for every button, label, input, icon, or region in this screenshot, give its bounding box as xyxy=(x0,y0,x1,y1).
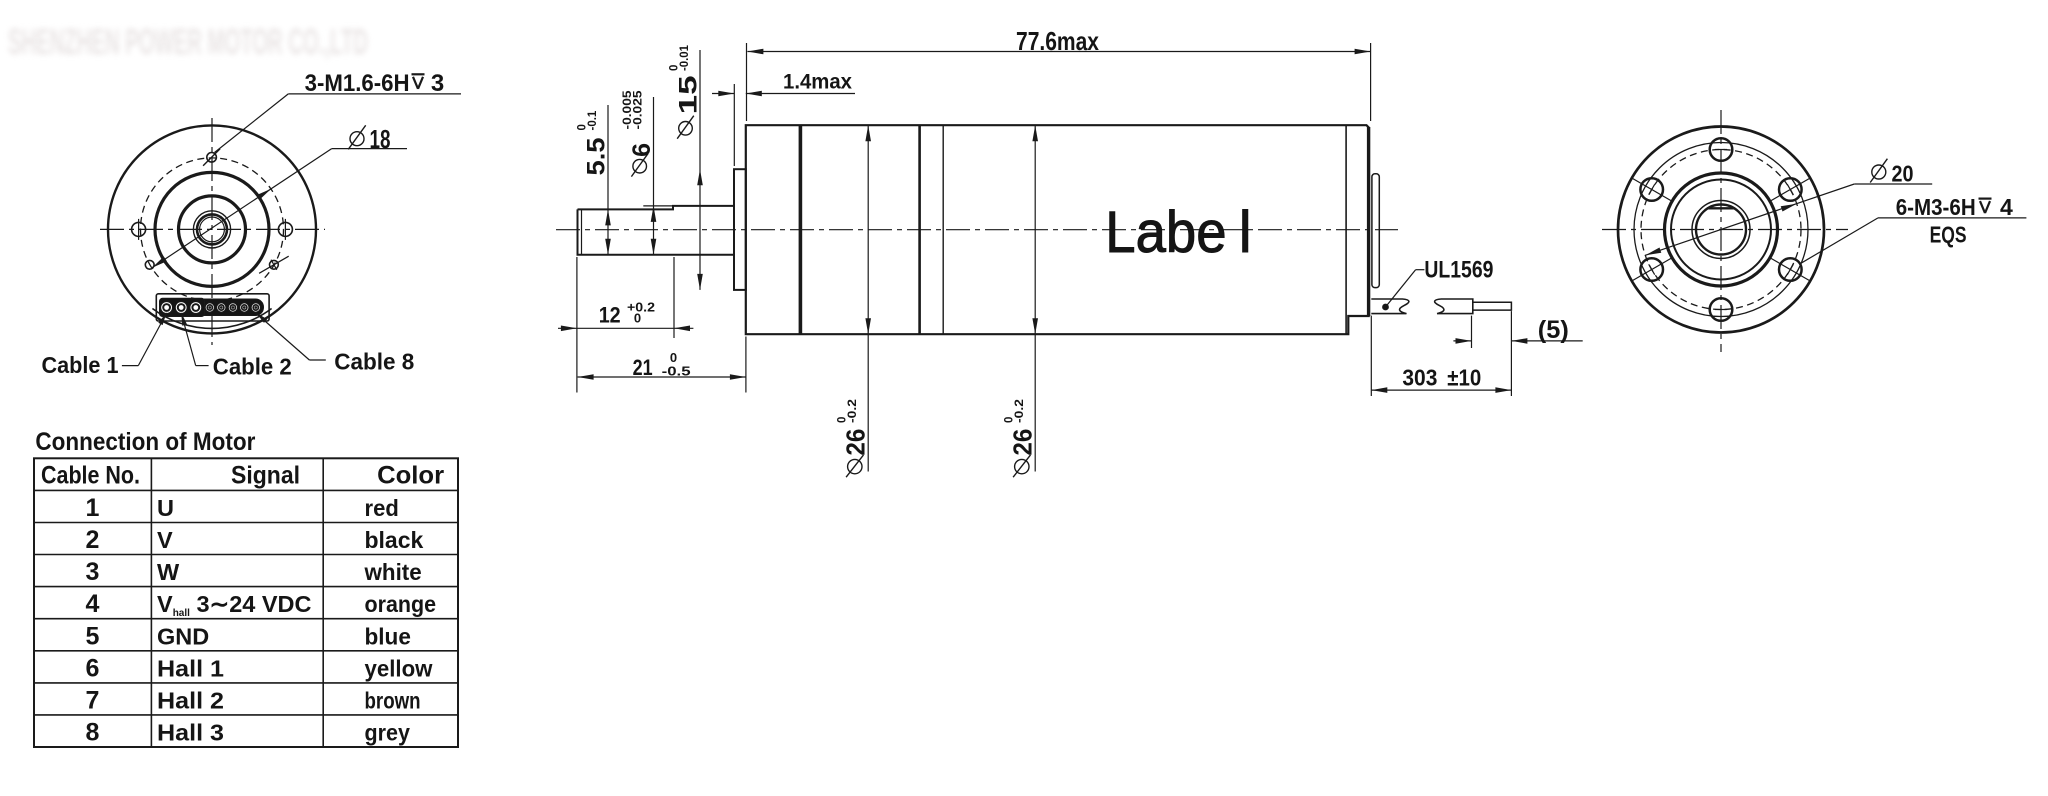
svg-text:-0.01: -0.01 xyxy=(679,44,691,71)
svg-text:3-M1.6-6H: 3-M1.6-6H xyxy=(305,70,410,97)
svg-text:4: 4 xyxy=(2000,194,2013,220)
svg-text:U: U xyxy=(157,495,174,521)
svg-text:7: 7 xyxy=(86,686,100,714)
svg-text:26: 26 xyxy=(1008,429,1038,456)
svg-text:5.5: 5.5 xyxy=(583,137,611,175)
svg-text:1.4max: 1.4max xyxy=(783,71,852,94)
svg-text:0: 0 xyxy=(670,350,677,365)
svg-text:orange: orange xyxy=(365,591,437,617)
svg-text:Color: Color xyxy=(377,462,444,490)
svg-text:white: white xyxy=(364,559,422,585)
svg-text:4: 4 xyxy=(86,590,100,618)
svg-text:-0.025: -0.025 xyxy=(633,90,645,130)
svg-text:12: 12 xyxy=(599,303,621,328)
svg-text:V: V xyxy=(157,527,173,553)
svg-text:-0.2: -0.2 xyxy=(1014,399,1026,423)
svg-text:grey: grey xyxy=(365,720,410,746)
svg-text:6: 6 xyxy=(628,143,656,157)
svg-text:brown: brown xyxy=(365,687,421,713)
svg-text:GND: GND xyxy=(157,623,209,649)
svg-text:303: 303 xyxy=(1402,365,1437,391)
svg-text:15: 15 xyxy=(675,75,703,114)
svg-text:Hall 2: Hall 2 xyxy=(157,687,224,713)
svg-text:1: 1 xyxy=(86,494,100,522)
svg-text:0: 0 xyxy=(634,310,641,325)
svg-text:Cable 1: Cable 1 xyxy=(42,352,119,378)
svg-text:SHENZHEN POWER MOTOR CO.,LTD: SHENZHEN POWER MOTOR CO.,LTD xyxy=(8,21,368,62)
svg-text:-0.5: -0.5 xyxy=(662,364,691,379)
svg-text:Signal: Signal xyxy=(231,462,300,490)
svg-text:red: red xyxy=(365,495,399,521)
svg-text:5: 5 xyxy=(86,622,100,650)
svg-text:blue: blue xyxy=(365,623,411,649)
svg-text:Cable 2: Cable 2 xyxy=(213,354,292,380)
svg-text:-0.2: -0.2 xyxy=(847,399,859,423)
svg-text:Hall 3: Hall 3 xyxy=(157,720,224,746)
svg-text:18: 18 xyxy=(370,124,391,154)
svg-text:Vhall 3∼24 VDC: Vhall 3∼24 VDC xyxy=(157,591,312,619)
svg-text:-0.1: -0.1 xyxy=(587,110,599,130)
svg-text:2: 2 xyxy=(86,526,100,554)
svg-text:Connection of Motor: Connection of Motor xyxy=(35,428,255,456)
svg-text:±10: ±10 xyxy=(1447,365,1481,391)
svg-text:26: 26 xyxy=(841,429,871,456)
svg-text:(5): (5) xyxy=(1538,316,1569,344)
svg-text:3: 3 xyxy=(431,70,444,97)
svg-text:black: black xyxy=(365,527,425,553)
svg-text:EQS: EQS xyxy=(1930,222,1967,248)
svg-text:Labe: Labe xyxy=(1105,200,1226,265)
svg-text:l: l xyxy=(1239,200,1252,265)
svg-text:21: 21 xyxy=(633,355,653,380)
svg-text:UL1569: UL1569 xyxy=(1424,257,1493,284)
svg-text:W: W xyxy=(157,559,180,585)
svg-text:yellow: yellow xyxy=(365,655,434,681)
svg-text:6: 6 xyxy=(86,654,100,682)
svg-text:3: 3 xyxy=(86,558,100,586)
svg-text:Cable No.: Cable No. xyxy=(41,462,140,490)
svg-text:77.6max: 77.6max xyxy=(1016,26,1099,56)
svg-text:6-M3-6H: 6-M3-6H xyxy=(1896,194,1976,220)
svg-text:Hall 1: Hall 1 xyxy=(157,655,224,681)
svg-text:8: 8 xyxy=(86,719,100,747)
svg-text:20: 20 xyxy=(1892,160,1914,186)
svg-text:Cable 8: Cable 8 xyxy=(334,349,414,375)
